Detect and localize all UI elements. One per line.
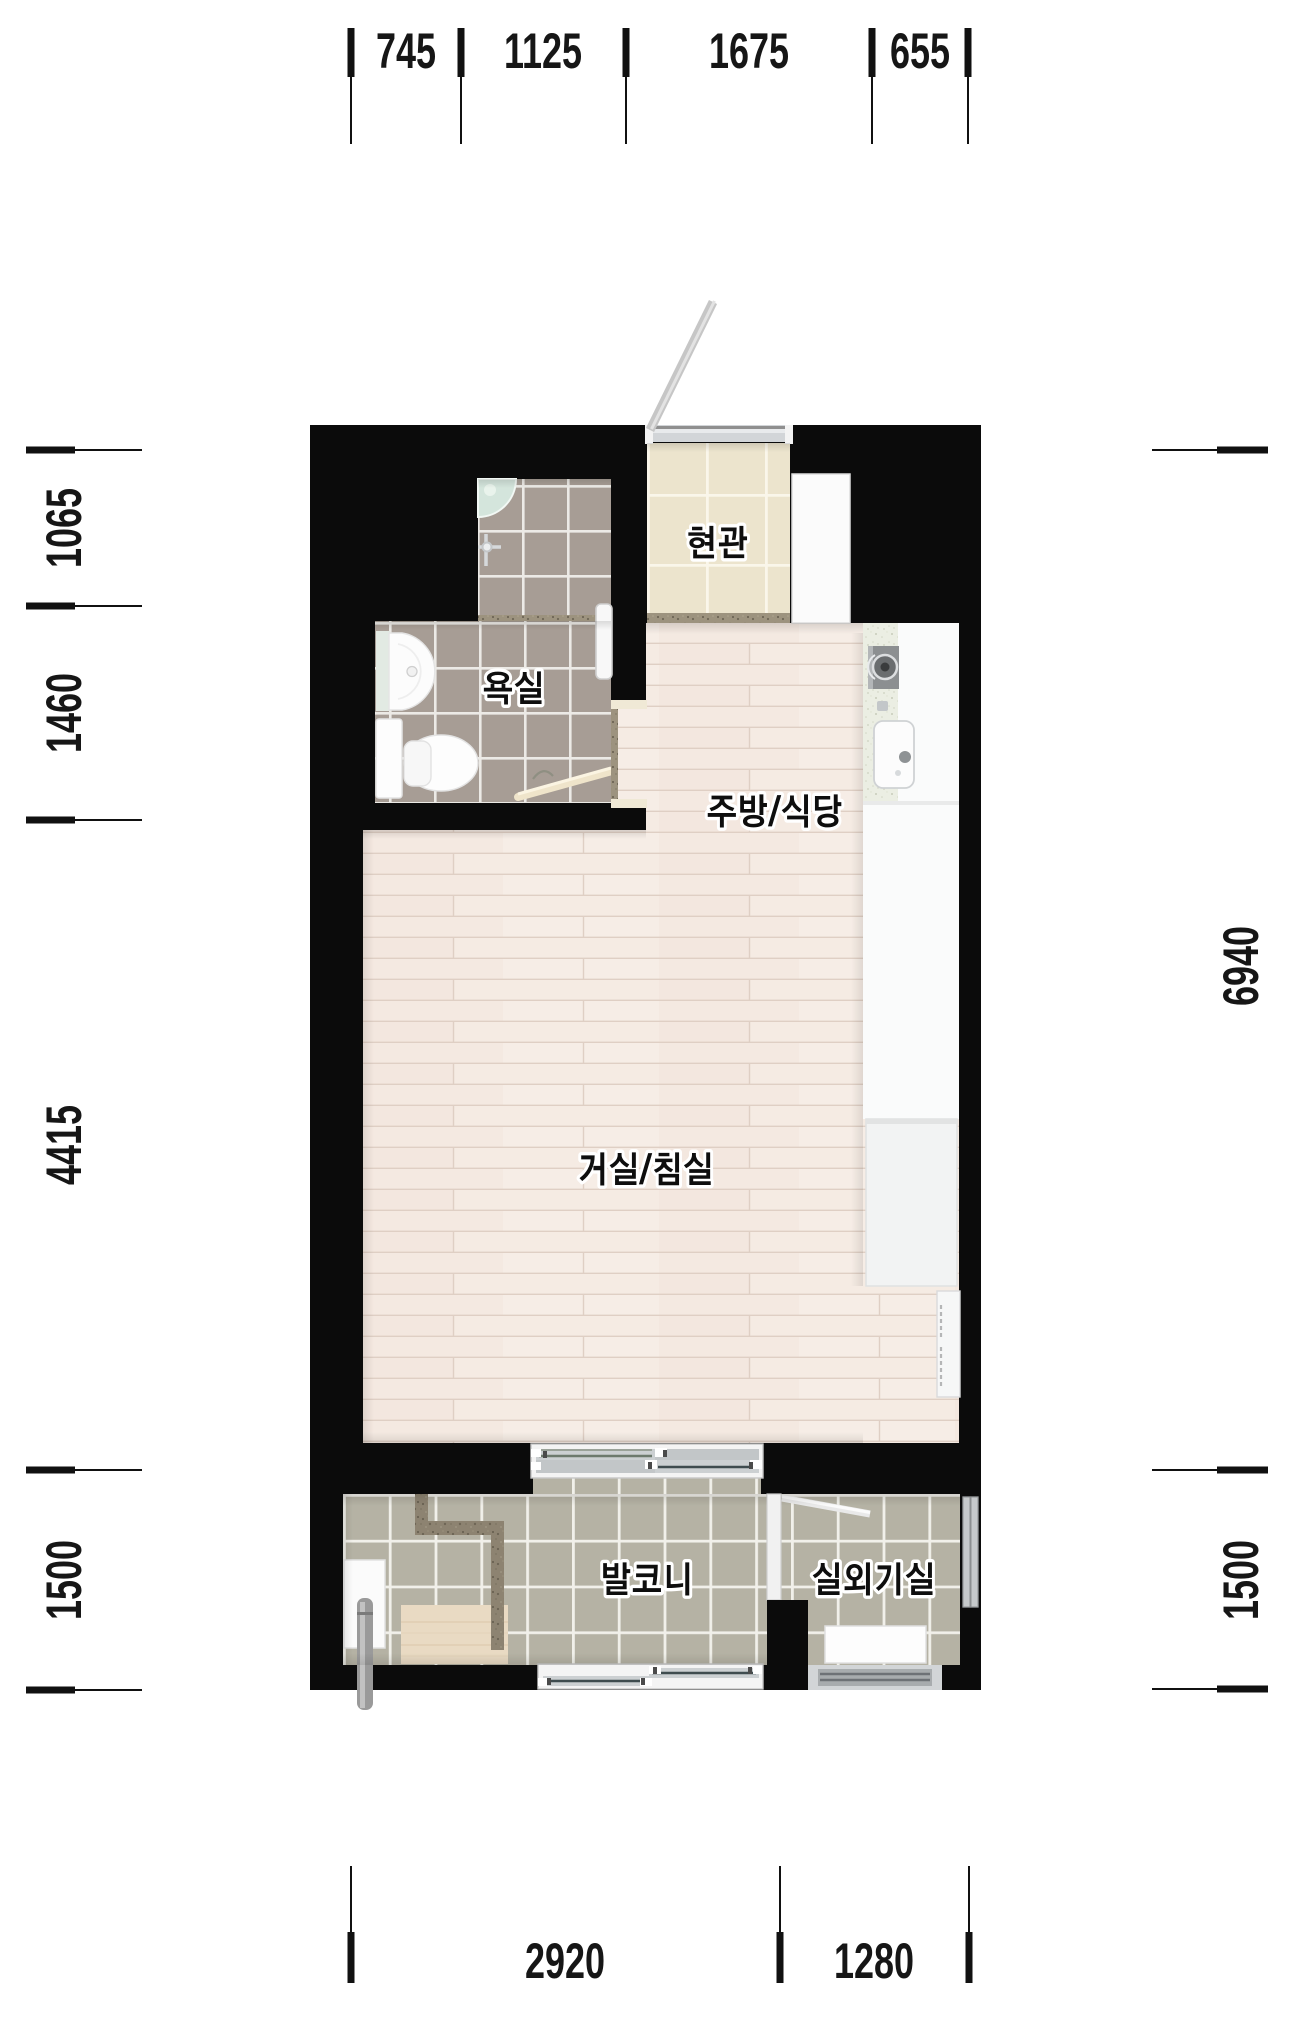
svg-text:1065: 1065 <box>37 488 92 568</box>
svg-text:655: 655 <box>890 24 950 79</box>
svg-text:1125: 1125 <box>504 24 582 79</box>
svg-text:1460: 1460 <box>37 673 92 753</box>
svg-text:1280: 1280 <box>834 1934 914 1989</box>
svg-text:4415: 4415 <box>37 1105 92 1185</box>
svg-text:1500: 1500 <box>1214 1540 1269 1620</box>
svg-text:2920: 2920 <box>525 1934 605 1989</box>
svg-text:1675: 1675 <box>709 24 789 79</box>
svg-text:1500: 1500 <box>37 1540 92 1620</box>
svg-text:6940: 6940 <box>1214 926 1269 1006</box>
svg-text:745: 745 <box>376 24 436 79</box>
